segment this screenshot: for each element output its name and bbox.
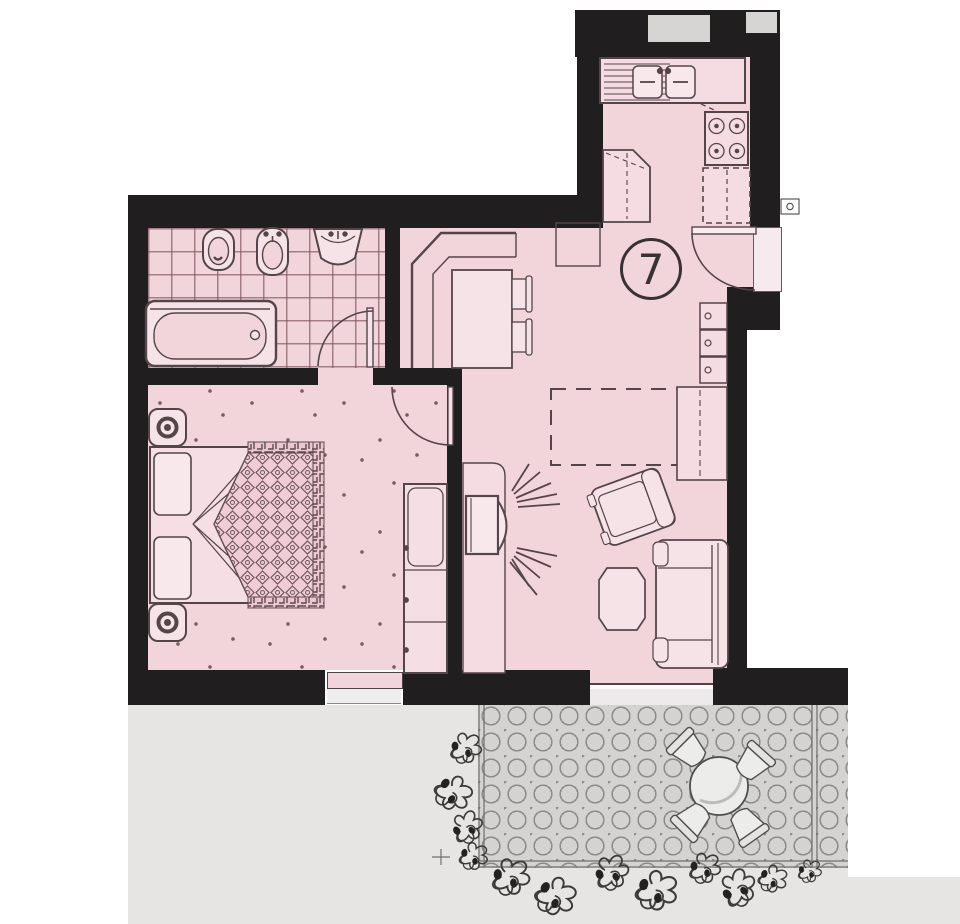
nook-chair (512, 319, 532, 355)
plan-linework (0, 0, 960, 924)
quilt-border-right (313, 442, 324, 608)
tv-board (463, 463, 505, 673)
bathtub (146, 301, 276, 366)
double-bed (150, 442, 324, 608)
pillow (154, 453, 191, 515)
refrigerator (703, 168, 750, 223)
floor-plan-canvas: 7 (0, 0, 960, 924)
shelf-unit (700, 303, 727, 383)
sideboard (677, 387, 727, 480)
hall-chair (556, 223, 600, 266)
doorbell-panel (781, 199, 799, 214)
terrace-border-lines (432, 705, 848, 868)
nightstand-top (149, 409, 186, 446)
bathroom-fixtures (146, 228, 373, 367)
unit-number-badge: 7 (620, 238, 682, 300)
quilt-border-bottom (248, 597, 324, 608)
armchair (585, 466, 677, 548)
toilet (203, 229, 234, 270)
unit-number: 7 (638, 245, 665, 294)
stove (705, 112, 748, 165)
terrace (429, 705, 848, 922)
pillow (154, 537, 191, 599)
nightstand-bottom (149, 604, 186, 641)
tv (466, 496, 507, 554)
sofa (653, 540, 728, 668)
bedroom-door (392, 387, 453, 445)
faucet (657, 68, 662, 73)
wardrobe (404, 484, 447, 673)
counter-with-sink (600, 58, 745, 103)
bathroom-door (318, 308, 373, 367)
bidet (257, 228, 288, 275)
bedroom-furniture (149, 387, 453, 673)
nook-chair (512, 276, 532, 312)
dining-nook (412, 223, 600, 368)
tv-signal-rays (510, 464, 560, 595)
entry-door (692, 227, 756, 290)
washbasin (314, 229, 362, 265)
faucet (665, 68, 670, 73)
coffee-table (599, 568, 645, 630)
nook-table (452, 270, 512, 368)
tall-cabinet (603, 150, 650, 222)
